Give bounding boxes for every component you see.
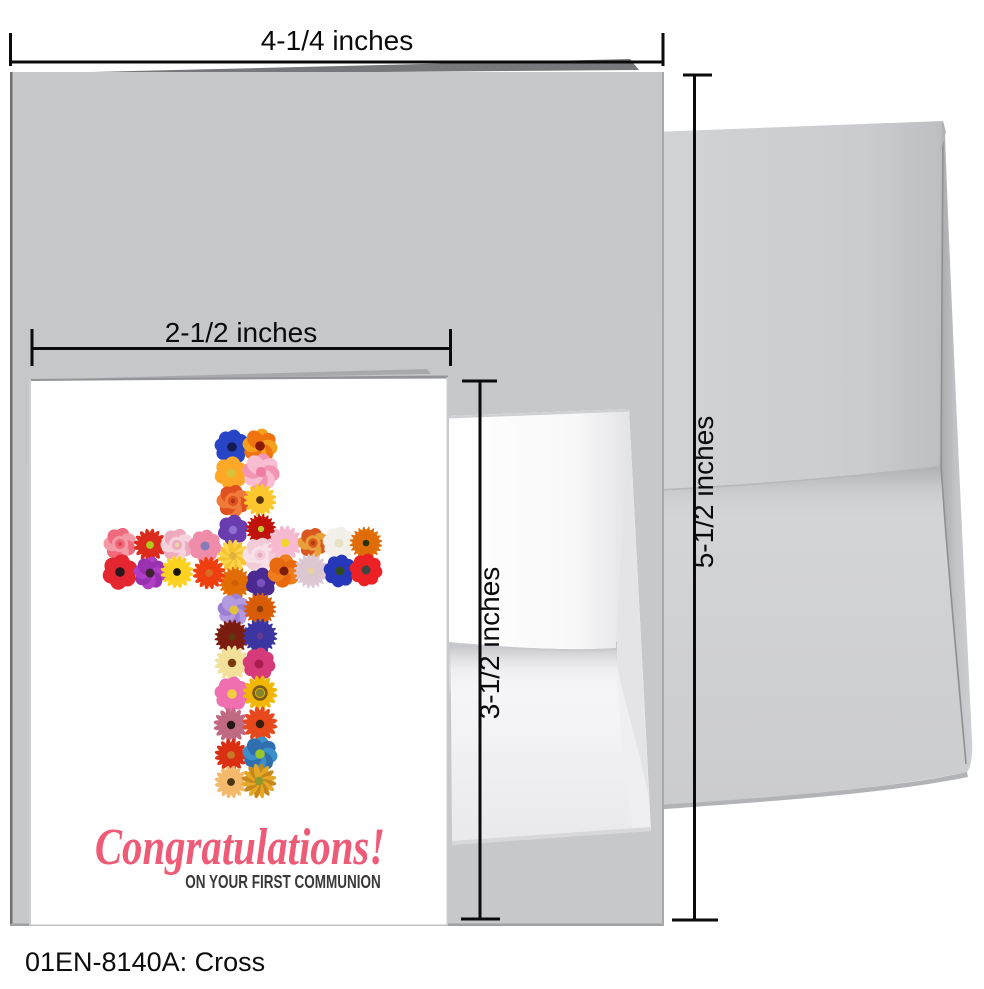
svg-text:4-1/4 inches: 4-1/4 inches: [261, 25, 414, 56]
svg-text:01EN-8140A: Cross: 01EN-8140A: Cross: [25, 947, 265, 977]
svg-text:5-1/2 inches: 5-1/2 inches: [688, 416, 719, 569]
svg-text:Congratulations!: Congratulations!: [95, 818, 385, 876]
svg-text:3-1/2 inches: 3-1/2 inches: [474, 567, 505, 720]
svg-text:2-1/2 inches: 2-1/2 inches: [165, 317, 318, 348]
svg-text:ON YOUR FIRST COMMUNION: ON YOUR FIRST COMMUNION: [185, 872, 380, 893]
